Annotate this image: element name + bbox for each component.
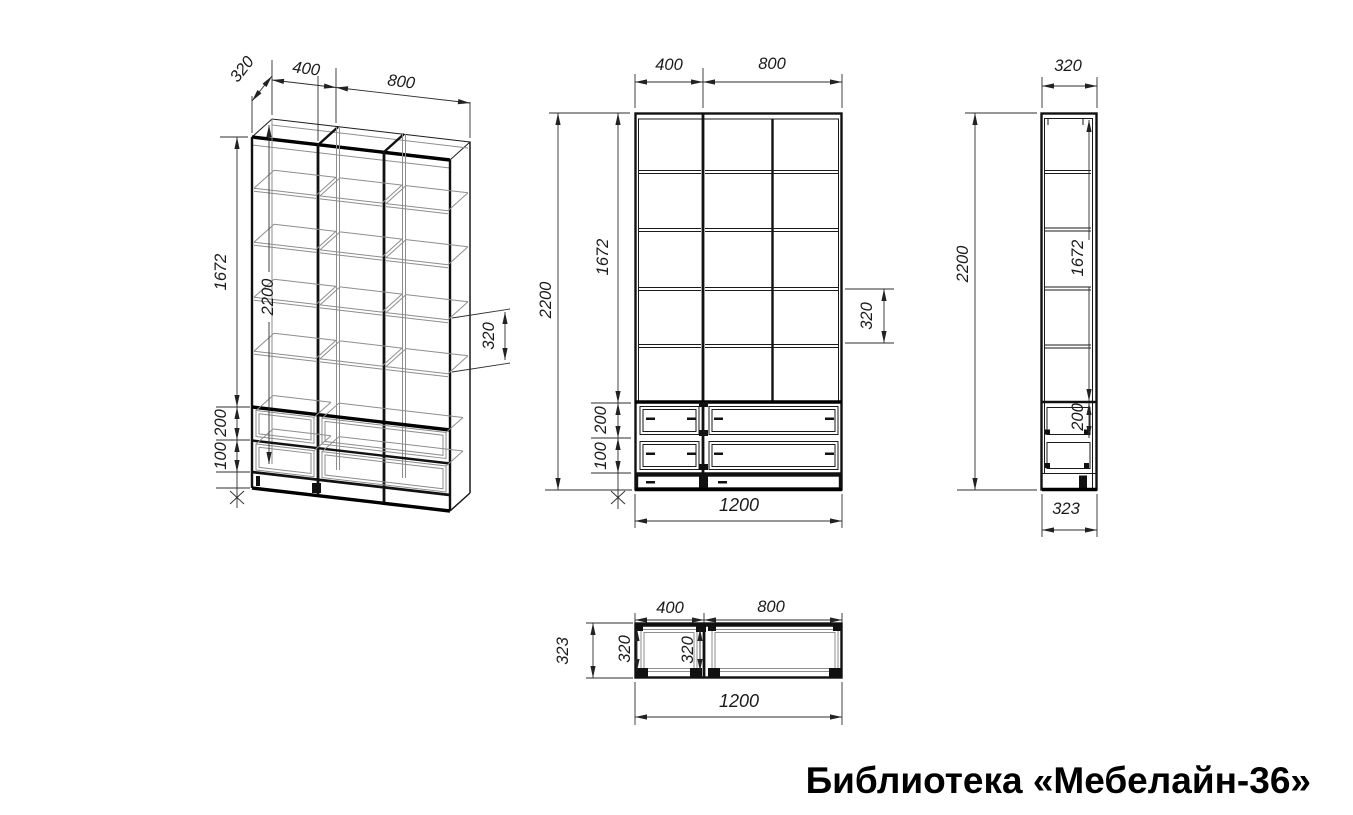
dim-side-height: 2200 <box>954 245 972 284</box>
side-view: 320 2200 1672 200 323 <box>954 57 1097 537</box>
technical-drawing-canvas: 320 400 800 1672 200 100 2200 320 <box>0 0 1353 815</box>
dim-top-width: 1200 <box>719 691 759 711</box>
isometric-view: 320 400 800 1672 200 100 2200 320 <box>212 52 510 511</box>
dim-top-base-depth: 323 <box>554 636 572 664</box>
dim-top-inner-depth-right: 320 <box>679 635 697 663</box>
blueprint-page: 320 400 800 1672 200 100 2200 320 <box>0 0 1353 815</box>
dim-front-spacing: 320 <box>858 301 876 329</box>
dim-iso-shelf-zone: 1672 <box>212 254 230 291</box>
dim-front-drawer: 200 <box>592 405 610 434</box>
dim-iso-plinth: 100 <box>212 441 230 469</box>
dim-iso-drawer: 200 <box>212 408 230 437</box>
dim-iso-left-width: 400 <box>291 58 321 79</box>
dim-side-drawer: 200 <box>1069 402 1087 431</box>
dim-front-height: 2200 <box>537 281 555 320</box>
dim-top-right-width: 800 <box>757 598 785 616</box>
dim-side-base-depth: 323 <box>1052 500 1080 518</box>
dim-front-plinth: 100 <box>592 441 610 469</box>
dim-front-right-width: 800 <box>758 55 786 73</box>
dim-iso-right-width: 800 <box>386 71 416 92</box>
dim-iso-depth: 320 <box>227 52 259 85</box>
dim-side-shelf-zone: 1672 <box>1069 240 1087 277</box>
top-view: 400 800 323 320 320 1200 <box>554 598 842 725</box>
dim-iso-height: 2200 <box>259 278 277 317</box>
dim-front-shelf-zone: 1672 <box>594 239 612 276</box>
dim-front-width: 1200 <box>719 495 759 515</box>
dim-front-left-width: 400 <box>655 56 683 74</box>
dim-top-inner-depth-left: 320 <box>616 634 634 662</box>
drawing-title: Библиотека «Мебелайн-36» <box>611 760 1311 802</box>
dim-side-depth: 320 <box>1054 57 1082 75</box>
front-view: 400 800 2200 1672 200 100 320 1200 <box>537 55 894 528</box>
dim-iso-spacing: 320 <box>480 321 498 349</box>
dim-top-left-width: 400 <box>656 599 684 617</box>
